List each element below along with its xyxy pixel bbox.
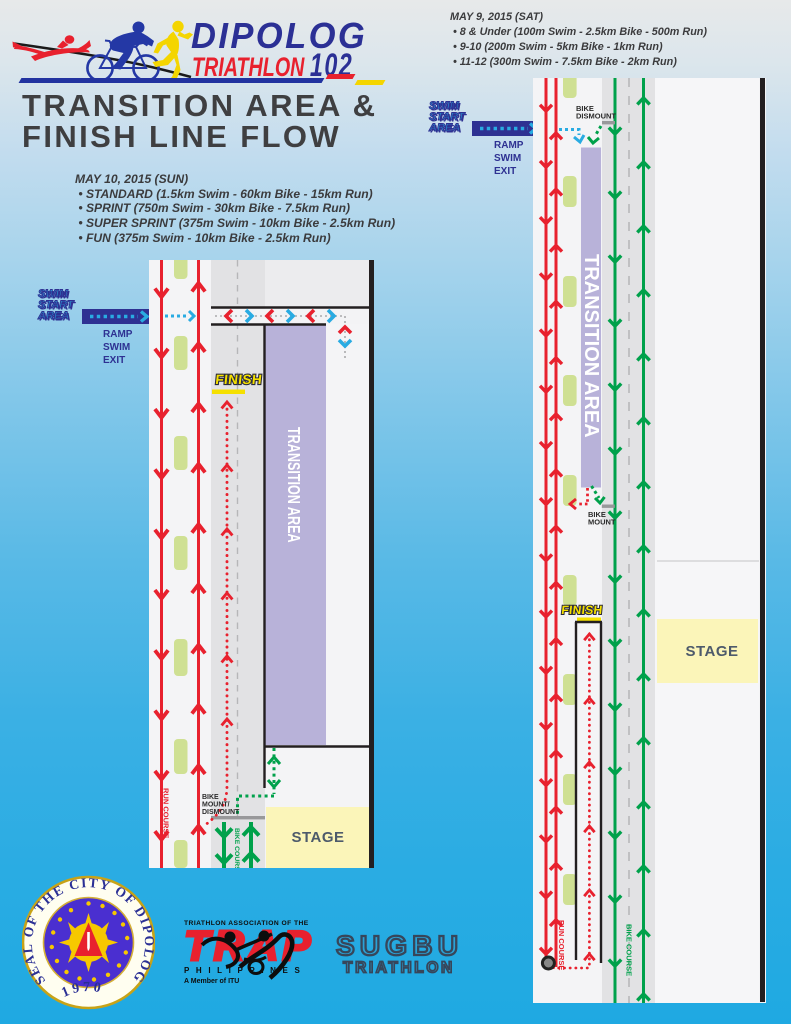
svg-text:RUN COURSE: RUN COURSE	[162, 788, 171, 838]
svg-text:STAGE: STAGE	[291, 829, 344, 846]
svg-text:BIKE: BIKE	[202, 794, 219, 801]
svg-text:DISMOUNT: DISMOUNT	[202, 809, 240, 816]
svg-text:SUGBU: SUGBU	[336, 930, 463, 961]
svg-text:FINISH: FINISH	[561, 603, 604, 617]
svg-text:RUN COURSE: RUN COURSE	[557, 920, 566, 970]
svg-text:MOUNT: MOUNT	[588, 518, 616, 527]
svg-text:STAGE: STAGE	[685, 643, 738, 660]
svg-text:BIKE COURSE: BIKE COURSE	[625, 924, 634, 976]
svg-text:BIKE COURSE: BIKE COURSE	[233, 828, 240, 868]
svg-text:TRANSITION AREA: TRANSITION AREA	[580, 254, 602, 438]
svg-text:TRANSITION AREA: TRANSITION AREA	[283, 427, 303, 543]
svg-text:MOUNT/: MOUNT/	[202, 801, 230, 808]
svg-text:DISMOUNT: DISMOUNT	[576, 112, 616, 121]
svg-text:TRIATHLON: TRIATHLON	[343, 960, 455, 977]
svg-text:FINISH: FINISH	[215, 372, 263, 387]
